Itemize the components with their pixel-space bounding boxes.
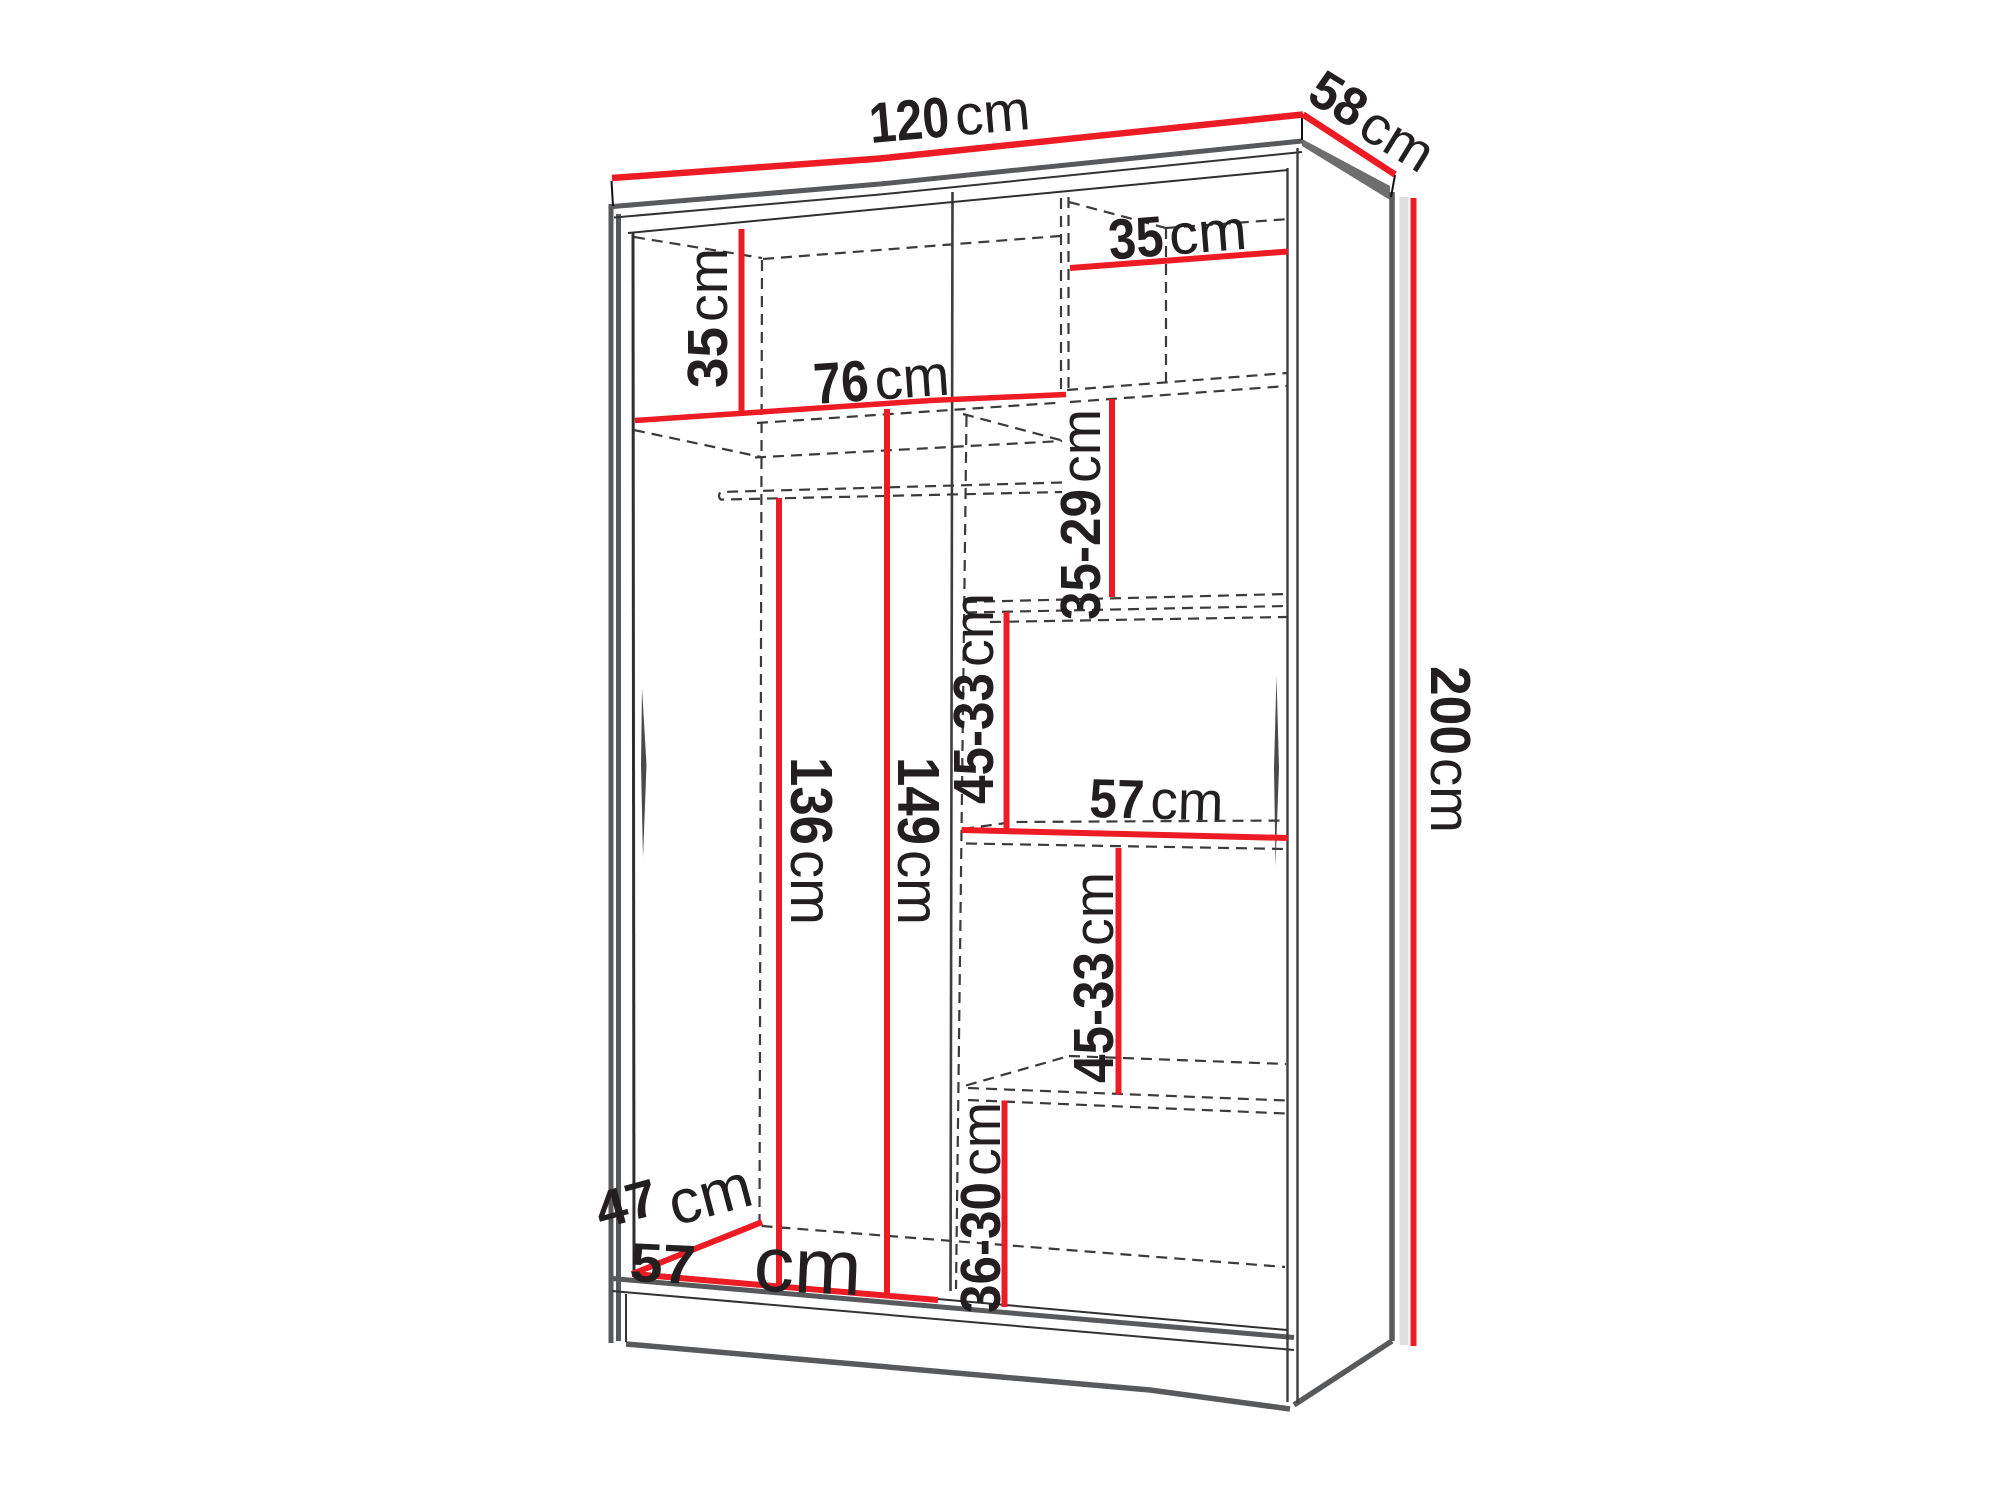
svg-text:cm: cm (1150, 769, 1225, 833)
svg-text:200: 200 (1418, 666, 1482, 755)
svg-text:35: 35 (1106, 204, 1166, 272)
svg-text:cm: cm (872, 343, 951, 413)
svg-text:cm: cm (1062, 872, 1126, 946)
svg-text:45-33: 45-33 (1062, 952, 1126, 1083)
svg-text:cm: cm (949, 1102, 1013, 1176)
svg-text:cm: cm (676, 248, 740, 322)
svg-text:cm: cm (778, 850, 844, 925)
svg-text:cm: cm (942, 593, 1006, 667)
svg-text:57: 57 (628, 1231, 697, 1296)
svg-text:149: 149 (885, 757, 951, 845)
svg-text:cm: cm (1049, 409, 1113, 483)
svg-text:136: 136 (778, 757, 844, 845)
svg-text:76: 76 (811, 348, 870, 417)
svg-text:35-29: 35-29 (1049, 489, 1113, 620)
svg-text:cm: cm (752, 1219, 864, 1312)
svg-text:cm: cm (1166, 198, 1249, 268)
svg-text:36-30: 36-30 (949, 1182, 1013, 1313)
svg-text:120: 120 (867, 85, 952, 156)
svg-text:cm: cm (952, 78, 1032, 148)
svg-text:cm: cm (1418, 758, 1482, 833)
svg-text:35: 35 (676, 327, 740, 388)
svg-text:57: 57 (1089, 767, 1146, 830)
svg-text:cm: cm (885, 850, 951, 925)
